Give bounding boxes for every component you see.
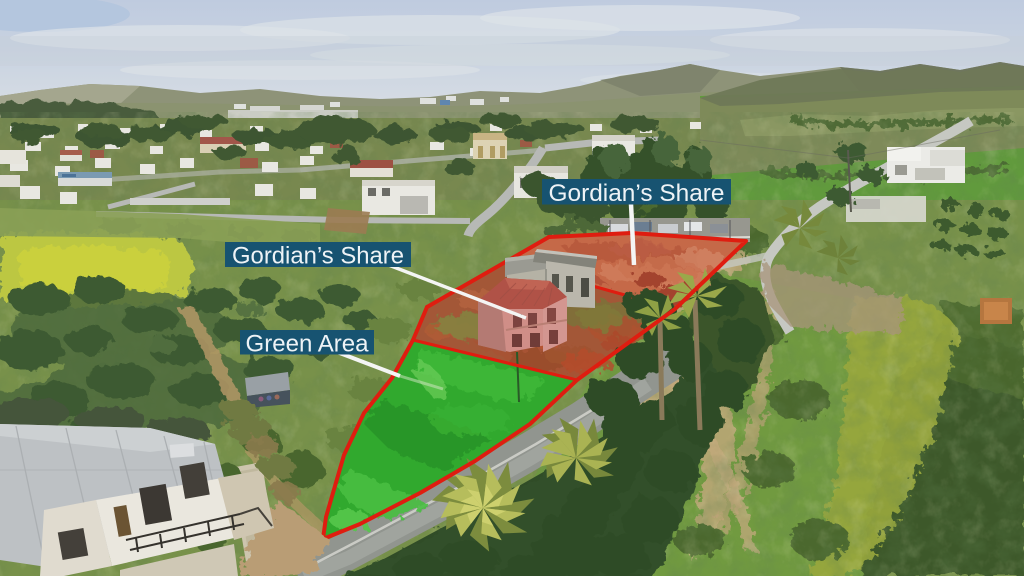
svg-text:Gordian’s Share: Gordian’s Share <box>549 180 725 207</box>
svg-text:Gordian’s Share: Gordian’s Share <box>232 243 404 270</box>
svg-text:Green Area: Green Area <box>246 331 370 358</box>
